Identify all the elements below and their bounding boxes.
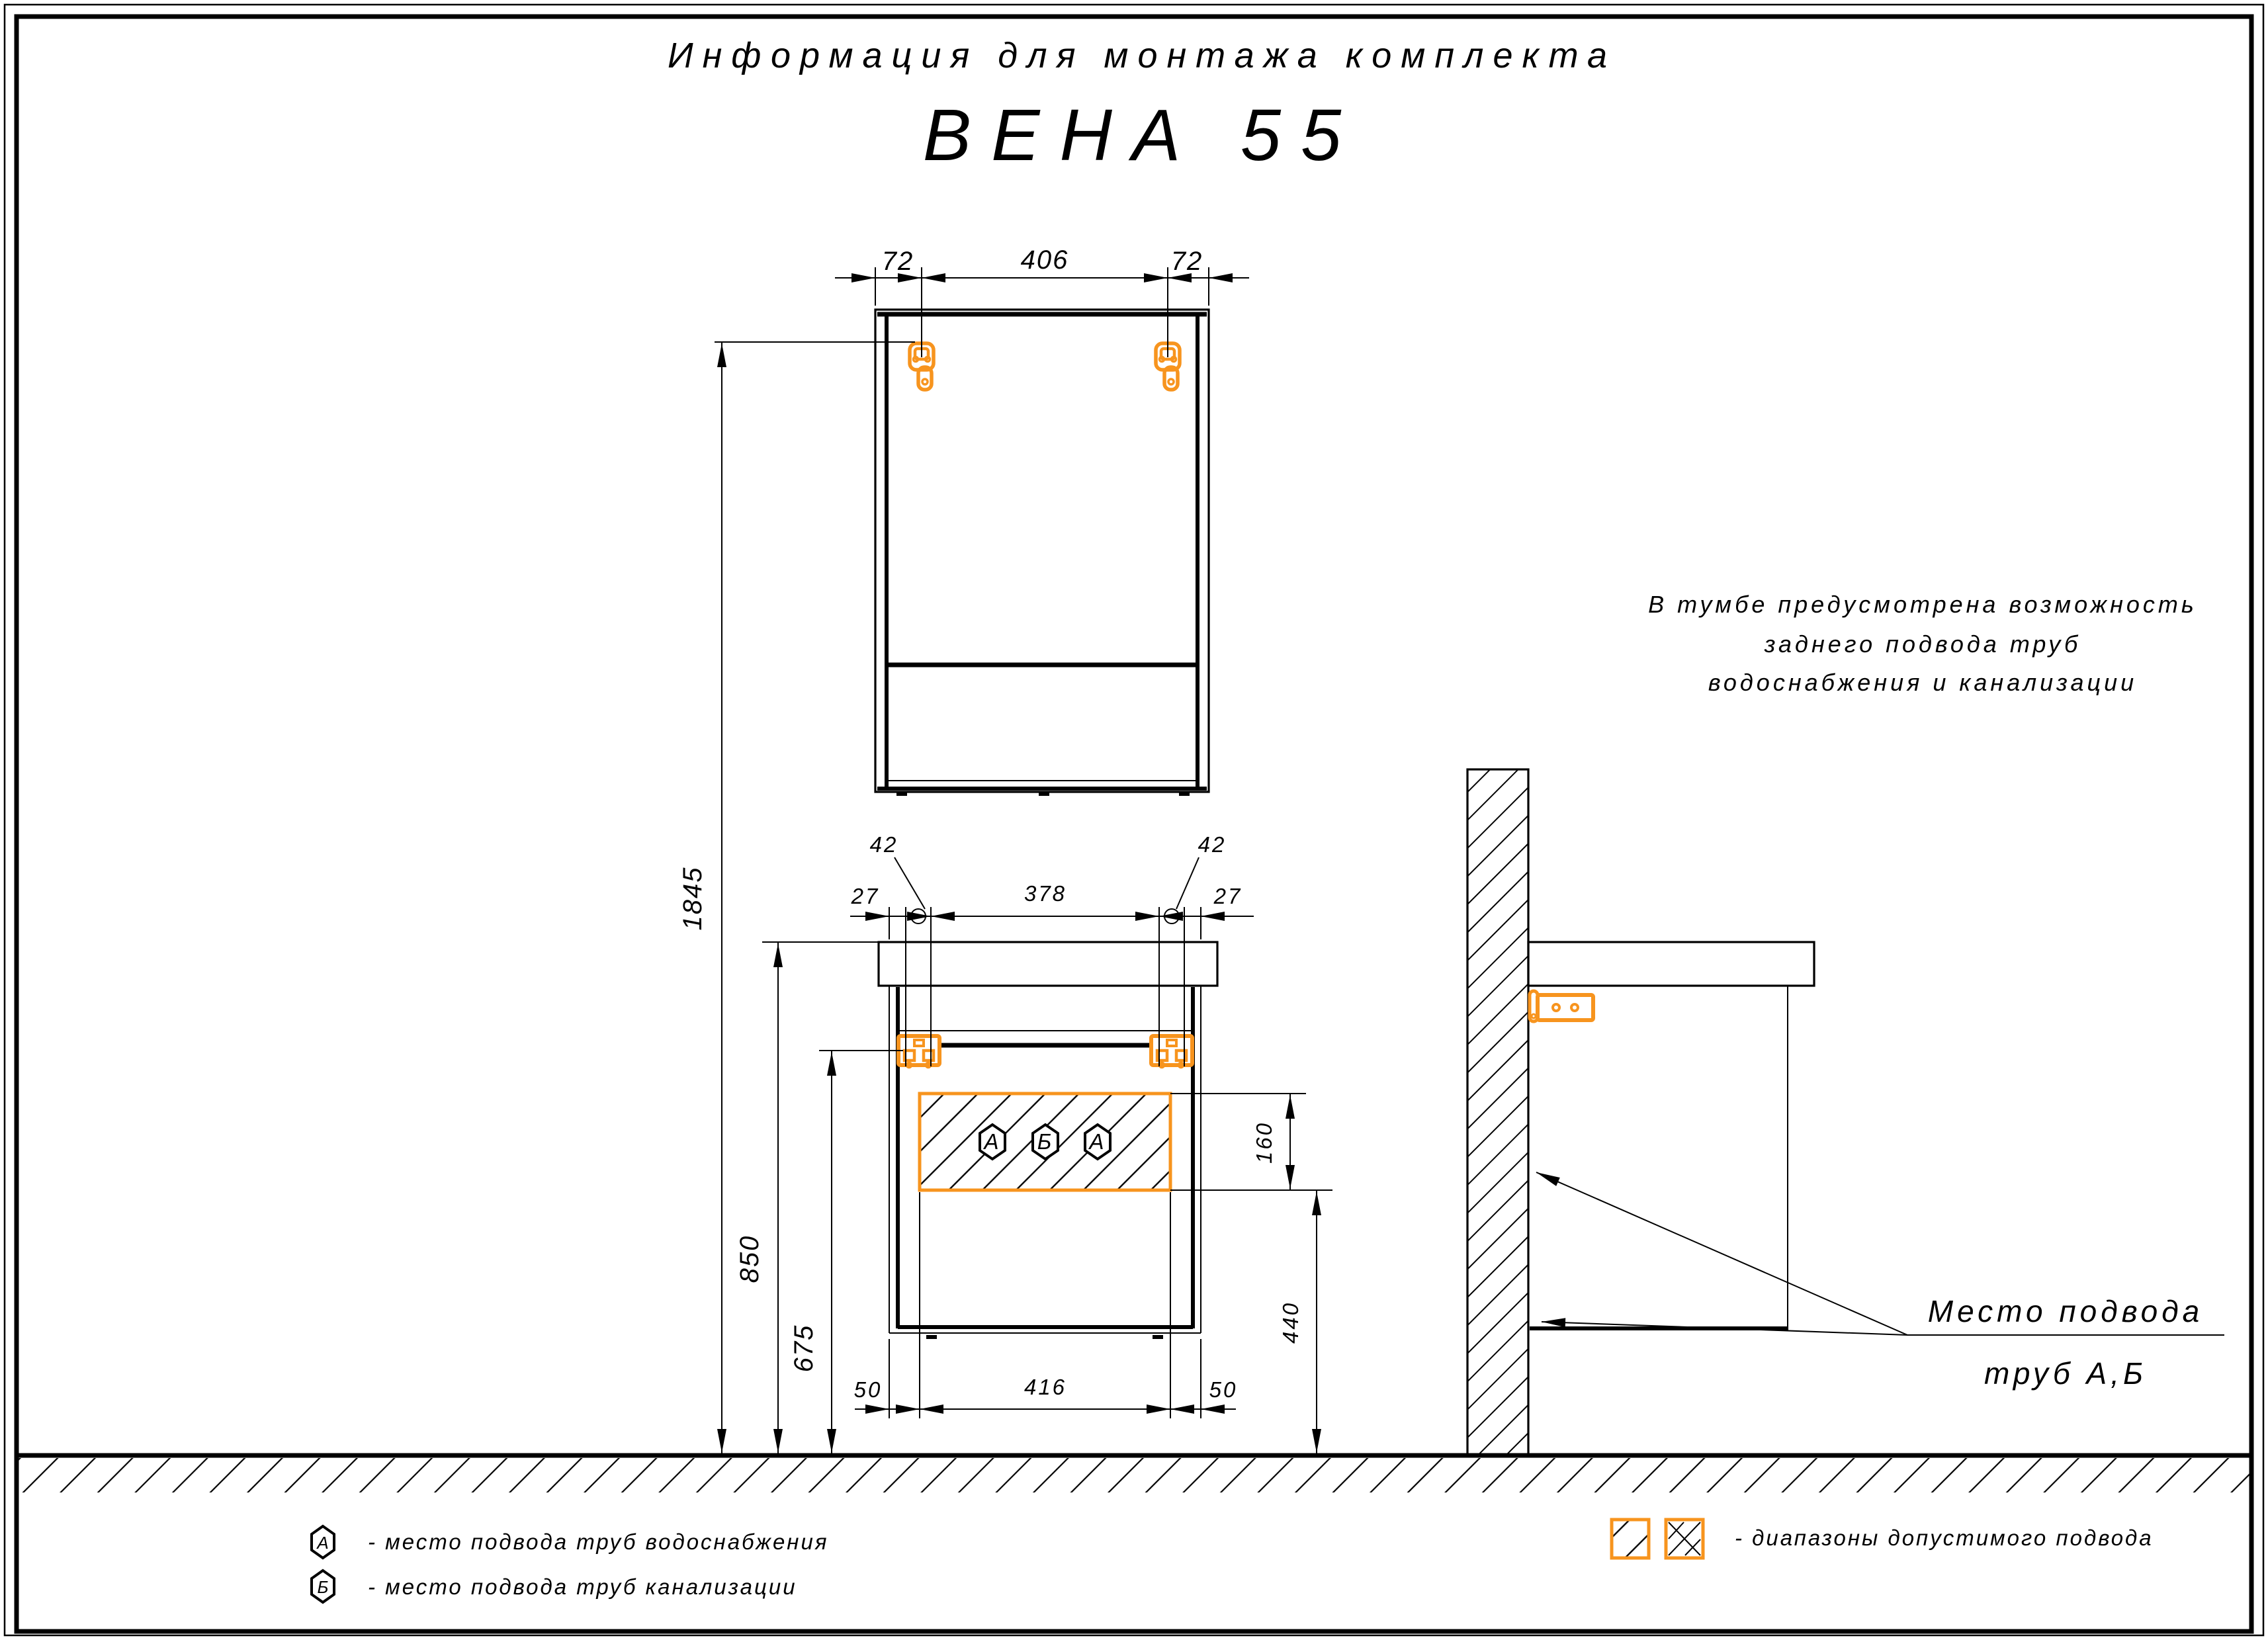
washbasin-outline xyxy=(879,942,1217,986)
dim-span-label: 378 xyxy=(1024,881,1067,906)
vena-55-installation-drawing: Информация для монтажа комплекта ВЕНА 55… xyxy=(0,0,2268,1640)
washbasin-side-outline xyxy=(1528,942,1814,986)
dim-zone-height-label: 160 xyxy=(1252,1121,1276,1164)
dim-bottom-right-label: 50 xyxy=(1209,1377,1238,1402)
dim-hole-right-label: 42 xyxy=(1198,832,1227,857)
legend-sewer: Б - место подвода труб канализации xyxy=(312,1571,797,1602)
pipe-callout: Место подвода труб А,Б xyxy=(1534,1168,2224,1391)
note-line2: заднего подвода труб xyxy=(1764,630,2081,658)
dim-zone-bottom-label: 440 xyxy=(1278,1301,1303,1344)
wall-mount-bracket-icon xyxy=(1530,991,1593,1021)
side-view xyxy=(1467,769,1814,1455)
dim-mirror-span-label: 406 xyxy=(1021,245,1069,275)
mirror-width-dimensions: 72 406 72 xyxy=(835,245,1249,357)
zone-marker-water-2: А xyxy=(1085,1125,1110,1159)
pipe-callout-line1: Место подвода xyxy=(1928,1294,2203,1328)
dim-offset-left-label: 27 xyxy=(851,884,880,908)
vanity-hanger-bracket-right-icon xyxy=(1151,1036,1192,1068)
legend-sewer-text: - место подвода труб канализации xyxy=(368,1575,797,1599)
mirror-outline xyxy=(875,310,1209,792)
legend-ranges: - диапазоны допустимого подвода xyxy=(1612,1520,2154,1558)
dim-height-850-label: 850 xyxy=(735,1235,764,1283)
page-frame xyxy=(5,5,2263,1635)
floor-hatch xyxy=(18,1458,2250,1492)
dim-offset-right-label: 27 xyxy=(1213,884,1243,908)
zone-marker-label: А xyxy=(982,1129,1000,1154)
zone-marker-sewer: Б xyxy=(1033,1125,1058,1159)
legend-ranges-text: - диапазоны допустимого подвода xyxy=(1735,1526,2154,1550)
zone-marker-water-1: А xyxy=(980,1125,1005,1159)
note-line1: В тумбе предусмотрена возможность xyxy=(1648,591,2197,618)
floor xyxy=(18,1455,2250,1492)
note-line3: водоснабжения и канализации xyxy=(1708,669,2137,696)
dim-bottom-left-label: 50 xyxy=(854,1377,883,1402)
pipe-callout-line2: труб А,Б xyxy=(1984,1356,2147,1391)
dim-mirror-left-label: 72 xyxy=(882,247,914,276)
legend-water-marker: А xyxy=(316,1533,328,1553)
page-title: Информация для монтажа комплекта xyxy=(668,36,1616,75)
dim-hole-left-label: 42 xyxy=(870,832,898,857)
zone-marker-label: А xyxy=(1088,1129,1106,1154)
note-block: В тумбе предусмотрена возможность заднег… xyxy=(1648,591,2197,696)
zone-marker-label: Б xyxy=(1037,1129,1053,1154)
legend-water-text: - место подвода труб водоснабжения xyxy=(368,1530,828,1554)
mirror-front-view xyxy=(875,310,1209,796)
legend-water: А - место подвода труб водоснабжения xyxy=(312,1526,828,1558)
dim-mirror-right-label: 72 xyxy=(1171,247,1203,276)
vanity-hanger-bracket-left-icon xyxy=(898,1036,939,1068)
connection-zone: А Б А xyxy=(920,1094,1170,1190)
model-title: ВЕНА 55 xyxy=(923,95,1361,176)
legend-sewer-marker: Б xyxy=(318,1577,329,1597)
bottom-dimensions: 50 416 50 xyxy=(854,1192,1238,1418)
dim-bottom-span-label: 416 xyxy=(1024,1375,1067,1399)
title-block: Информация для монтажа комплекта ВЕНА 55 xyxy=(668,36,1616,176)
dim-height-1845-label: 1845 xyxy=(678,867,707,931)
dim-height-675-label: 675 xyxy=(789,1324,818,1373)
